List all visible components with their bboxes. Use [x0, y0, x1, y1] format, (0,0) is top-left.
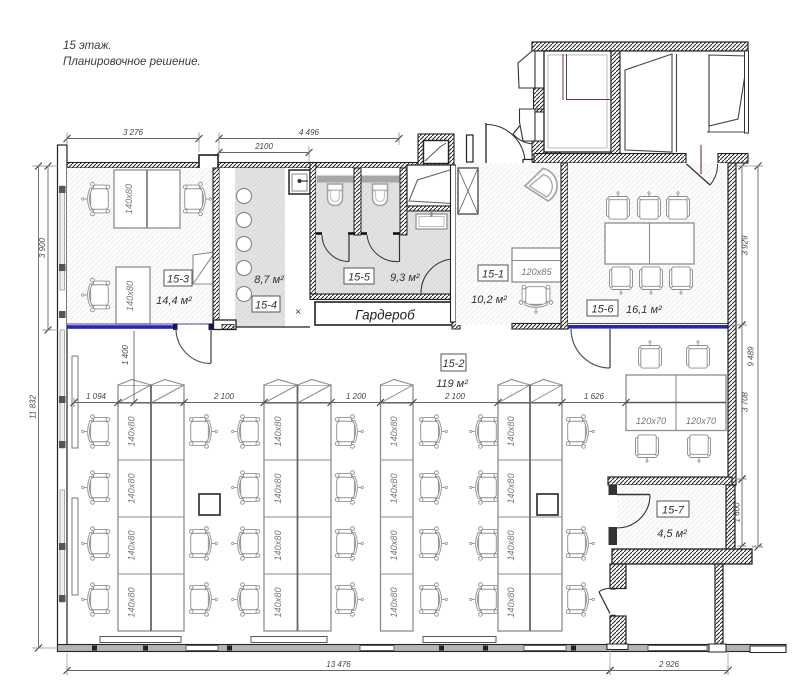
svg-text:140x80: 140x80 — [273, 530, 283, 561]
svg-text:140x80: 140x80 — [273, 473, 283, 504]
svg-text:11 832: 11 832 — [29, 395, 38, 419]
svg-text:2 100: 2 100 — [213, 392, 235, 401]
svg-text:140x80: 140x80 — [127, 416, 137, 447]
svg-text:3 929: 3 929 — [741, 235, 750, 256]
svg-text:2100: 2100 — [254, 142, 273, 151]
svg-text:2 100: 2 100 — [444, 392, 466, 401]
svg-text:140x80: 140x80 — [506, 416, 516, 447]
svg-text:4,5 м²: 4,5 м² — [657, 528, 687, 540]
svg-text:Гардероб: Гардероб — [355, 308, 415, 323]
svg-text:3 276: 3 276 — [123, 128, 144, 137]
svg-text:2 926: 2 926 — [658, 660, 680, 669]
svg-text:1 600: 1 600 — [733, 502, 742, 523]
svg-text:140x80: 140x80 — [506, 587, 516, 618]
svg-text:140x80: 140x80 — [273, 587, 283, 618]
svg-text:119 м²: 119 м² — [436, 378, 468, 390]
svg-text:3 708: 3 708 — [741, 391, 750, 412]
svg-text:140x80: 140x80 — [124, 183, 134, 214]
svg-text:15-1: 15-1 — [482, 269, 504, 281]
svg-text:140x80: 140x80 — [389, 587, 399, 618]
svg-text:15 этаж.: 15 этаж. — [63, 40, 112, 52]
svg-text:15-5: 15-5 — [348, 272, 371, 284]
svg-text:8,7 м²: 8,7 м² — [254, 274, 284, 286]
svg-text:15-2: 15-2 — [442, 358, 464, 370]
svg-text:15-6: 15-6 — [591, 304, 614, 316]
svg-text:Планировочное решение.: Планировочное решение. — [63, 56, 201, 68]
svg-text:140x80: 140x80 — [389, 530, 399, 561]
svg-text:3 900: 3 900 — [38, 237, 47, 258]
svg-text:4 496: 4 496 — [299, 128, 320, 137]
svg-text:140x80: 140x80 — [506, 473, 516, 504]
svg-text:16,1 м²: 16,1 м² — [626, 304, 662, 316]
svg-text:1 094: 1 094 — [86, 392, 107, 401]
svg-text:140x80: 140x80 — [127, 587, 137, 618]
svg-text:120x70: 120x70 — [636, 416, 667, 426]
svg-text:1 200: 1 200 — [346, 392, 367, 401]
svg-text:1 626: 1 626 — [584, 392, 605, 401]
svg-text:140x80: 140x80 — [389, 416, 399, 447]
svg-text:140x80: 140x80 — [127, 473, 137, 504]
svg-text:9,3 м²: 9,3 м² — [390, 272, 420, 284]
svg-text:15-4: 15-4 — [255, 300, 277, 312]
svg-text:140x80: 140x80 — [389, 473, 399, 504]
svg-text:140x80: 140x80 — [273, 416, 283, 447]
svg-text:10,2 м²: 10,2 м² — [471, 294, 507, 306]
svg-text:15-7: 15-7 — [662, 505, 685, 517]
svg-text:×: × — [295, 307, 301, 318]
svg-text:120x85: 120x85 — [521, 267, 552, 277]
svg-text:15-3: 15-3 — [167, 274, 190, 286]
svg-text:13 476: 13 476 — [326, 660, 351, 669]
svg-text:140x80: 140x80 — [125, 280, 135, 311]
svg-text:1 400: 1 400 — [121, 344, 130, 365]
svg-text:140x80: 140x80 — [506, 530, 516, 561]
svg-text:140x80: 140x80 — [127, 530, 137, 561]
svg-text:14,4 м²: 14,4 м² — [156, 295, 192, 307]
svg-text:120x70: 120x70 — [686, 416, 717, 426]
svg-text:9 489: 9 489 — [747, 346, 756, 367]
